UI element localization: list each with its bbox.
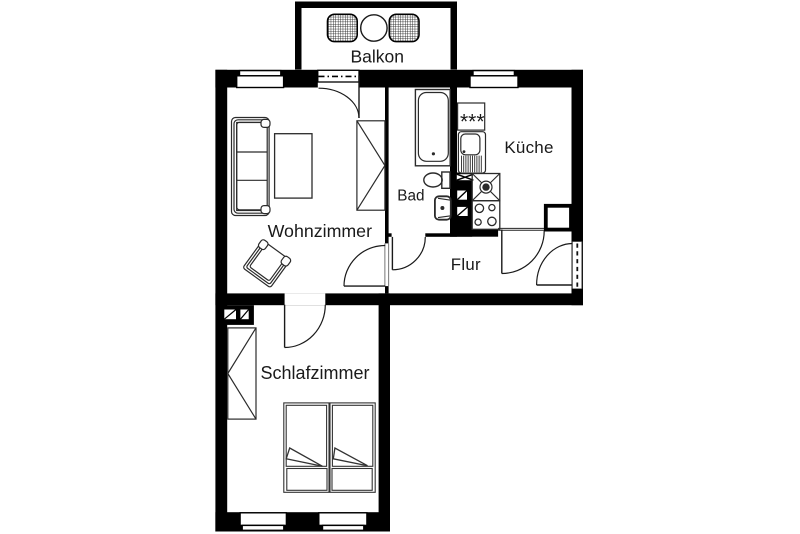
svg-text:Wohnzimmer: Wohnzimmer xyxy=(268,221,372,241)
svg-text:Balkon: Balkon xyxy=(351,47,405,67)
svg-text:Flur: Flur xyxy=(451,255,481,274)
svg-text:Bad: Bad xyxy=(397,187,424,204)
svg-text:Küche: Küche xyxy=(504,138,553,157)
svg-text:***: *** xyxy=(460,111,485,134)
svg-text:Schlafzimmer: Schlafzimmer xyxy=(261,363,370,383)
